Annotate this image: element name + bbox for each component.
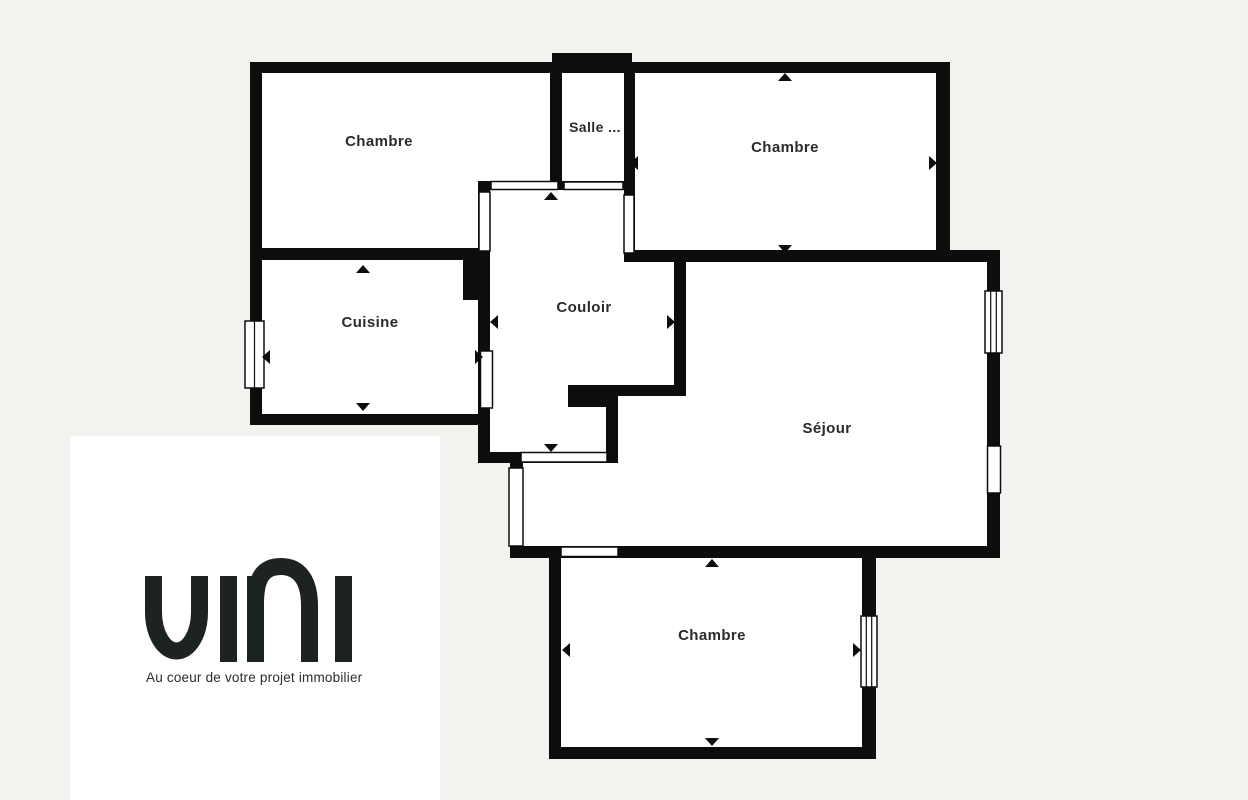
wall-segment: [250, 414, 490, 425]
window: [985, 291, 1002, 353]
floorplan-drawing: Chambre Salle ... Chambre Cuisine Couloi…: [0, 0, 1248, 800]
door-opening: [564, 182, 623, 190]
window: [509, 468, 523, 546]
door-opening: [521, 453, 607, 463]
room-label-sejour: Séjour: [802, 420, 851, 437]
door-opening: [481, 351, 493, 408]
logo-tagline: Au coeur de votre projet immobilier: [146, 670, 363, 685]
room-label-chambre-top-right: Chambre: [751, 139, 819, 156]
door-opening: [561, 547, 618, 557]
floorplan-page: Chambre Salle ... Chambre Cuisine Couloi…: [0, 0, 1248, 800]
door-opening: [624, 195, 634, 253]
wall-segment: [550, 62, 562, 190]
window: [861, 616, 877, 687]
room-label-salle: Salle ...: [569, 119, 621, 135]
wall-segment: [552, 53, 632, 64]
room-label-chambre-top-left: Chambre: [345, 133, 413, 150]
wall-segment: [250, 248, 473, 260]
wall-segment: [674, 262, 686, 390]
room-label-cuisine: Cuisine: [342, 314, 399, 331]
window: [988, 446, 1001, 493]
door-opening: [491, 182, 558, 190]
room-label-couloir: Couloir: [556, 299, 611, 316]
wall-segment: [549, 546, 561, 759]
door-opening: [479, 192, 490, 251]
agency-logo: uni Au coeur de votre projet immobilier: [70, 436, 440, 800]
room-label-chambre-bottom: Chambre: [678, 627, 746, 644]
wall-segment: [936, 62, 950, 253]
wall-segment: [549, 747, 876, 759]
